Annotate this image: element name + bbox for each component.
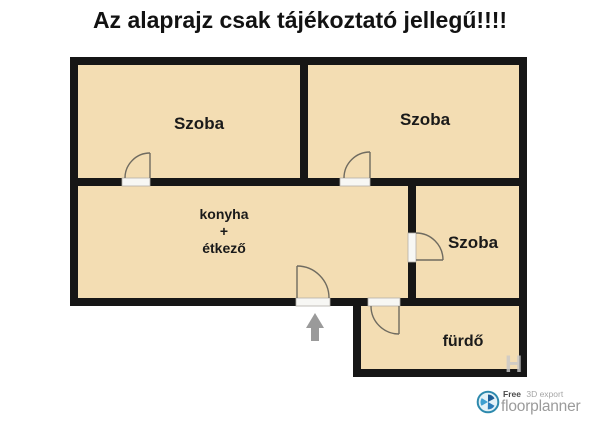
wall-top bbox=[70, 57, 527, 65]
wall-divider-top-rooms bbox=[300, 57, 308, 186]
door-threshold bbox=[122, 178, 150, 186]
wall-bottom-segment bbox=[400, 298, 527, 306]
arrow-shaft bbox=[311, 328, 319, 341]
arrow-head bbox=[306, 313, 324, 328]
door-threshold bbox=[340, 178, 370, 186]
floorplanner-logo: Free 3D export floorplanner bbox=[478, 389, 581, 415]
floorplan-page: Az alaprajz csak tájékoztató jellegű!!!! bbox=[0, 0, 600, 424]
room-label-bathroom: fürdő bbox=[443, 333, 484, 350]
room-label-dining: étkező bbox=[202, 240, 246, 256]
room-label-kitchen: konyha bbox=[199, 206, 248, 222]
wall-bathroom-bottom bbox=[353, 369, 527, 377]
door-threshold bbox=[296, 298, 330, 306]
wall-mid-segment bbox=[370, 178, 527, 186]
wall-mid-segment bbox=[150, 178, 340, 186]
entrance-arrow-icon bbox=[306, 313, 324, 341]
room-label-szoba-top-right: Szoba bbox=[400, 110, 451, 129]
room-label-kitchen-plus: + bbox=[220, 223, 228, 239]
wall-divider-kitchen-room bbox=[408, 178, 416, 233]
logo-brand-text: floorplanner bbox=[501, 398, 580, 415]
watermark-text: H bbox=[505, 351, 522, 378]
wall-bottom-segment bbox=[330, 298, 368, 306]
wall-bathroom-left bbox=[353, 298, 361, 377]
room-label-szoba-right: Szoba bbox=[448, 233, 499, 252]
floorplan-drawing: Szoba Szoba konyha + étkező Szoba fürdő … bbox=[0, 0, 600, 424]
floorplanner-icon bbox=[478, 392, 499, 413]
door-threshold bbox=[408, 233, 416, 262]
floor-area bbox=[70, 57, 527, 377]
wall-bottom-segment bbox=[70, 298, 296, 306]
room-label-szoba-top-left: Szoba bbox=[174, 114, 225, 133]
door-threshold bbox=[368, 298, 400, 306]
wall-right bbox=[519, 57, 527, 377]
wall-mid-segment bbox=[70, 178, 122, 186]
